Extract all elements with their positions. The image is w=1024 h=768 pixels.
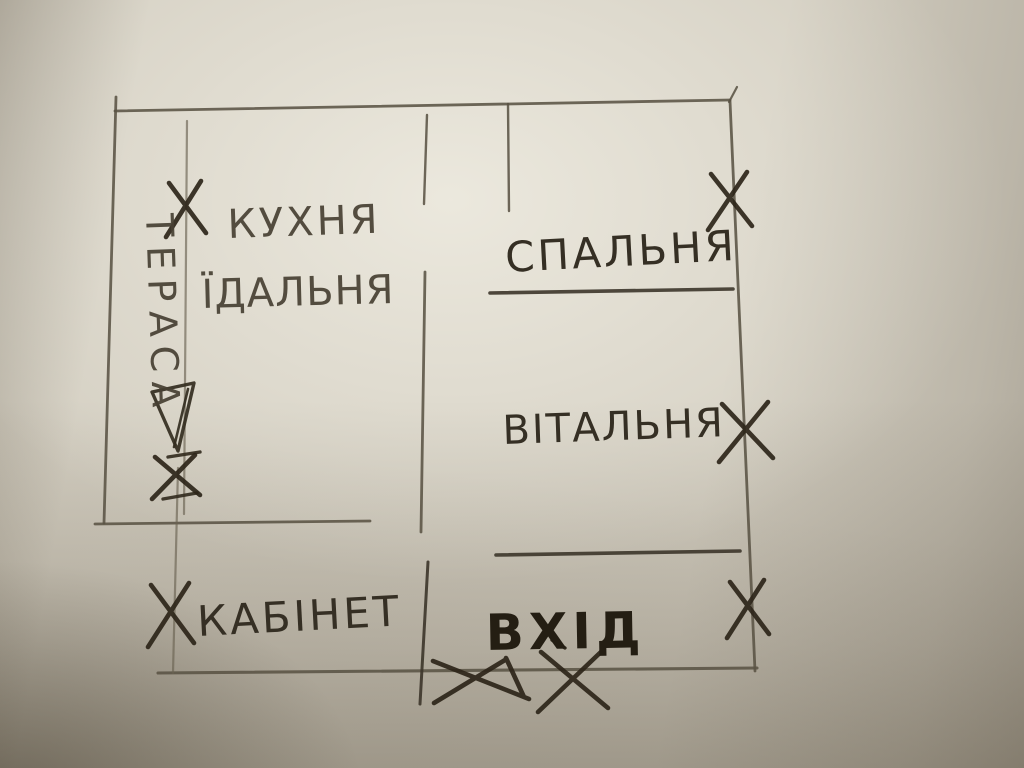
room-label-living-room: ВІТАЛЬНЯ — [502, 400, 726, 454]
x-mark-bottom-right-wall — [727, 580, 769, 638]
wall-top — [115, 100, 730, 111]
walls — [95, 87, 757, 704]
wall-bedroom-left-upper — [508, 104, 509, 211]
room-labels: ТЕРАСА КУХНЯ ЇДАЛЬНЯ СПАЛЬНЯ ВІТАЛЬНЯ КА… — [137, 197, 738, 662]
wall-office-entrance-divider — [420, 562, 428, 704]
room-label-bedroom: СПАЛЬНЯ — [504, 221, 738, 282]
wall-kitchen-right-upper — [424, 115, 427, 204]
wall-top-right-corner-tick — [729, 87, 737, 102]
wall-kitchen-right-lower — [421, 272, 425, 532]
room-label-terrace: ТЕРАСА — [137, 212, 188, 417]
x-mark-office-left-wall — [148, 583, 194, 647]
room-label-kitchen: КУХНЯ — [227, 197, 382, 248]
room-label-entrance: ВХІД — [485, 601, 646, 662]
wall-living-entrance-divider — [496, 551, 740, 555]
room-label-dining: ЇДАЛЬНЯ — [201, 265, 395, 318]
wall-left-upper — [104, 97, 116, 523]
room-label-office: КАБІНЕТ — [196, 586, 403, 646]
wall-kitchen-bottom — [95, 521, 370, 524]
floor-plan-sketch-photo: ТЕРАСА КУХНЯ ЇДАЛЬНЯ СПАЛЬНЯ ВІТАЛЬНЯ КА… — [0, 0, 1024, 768]
wall-bedroom-living-divider — [490, 289, 733, 293]
entrance-door-bowtie-icon — [433, 658, 529, 703]
terrace-door-dash-lower — [163, 493, 197, 499]
floor-plan-drawing: ТЕРАСА КУХНЯ ЇДАЛЬНЯ СПАЛЬНЯ ВІТАЛЬНЯ КА… — [0, 0, 1024, 768]
